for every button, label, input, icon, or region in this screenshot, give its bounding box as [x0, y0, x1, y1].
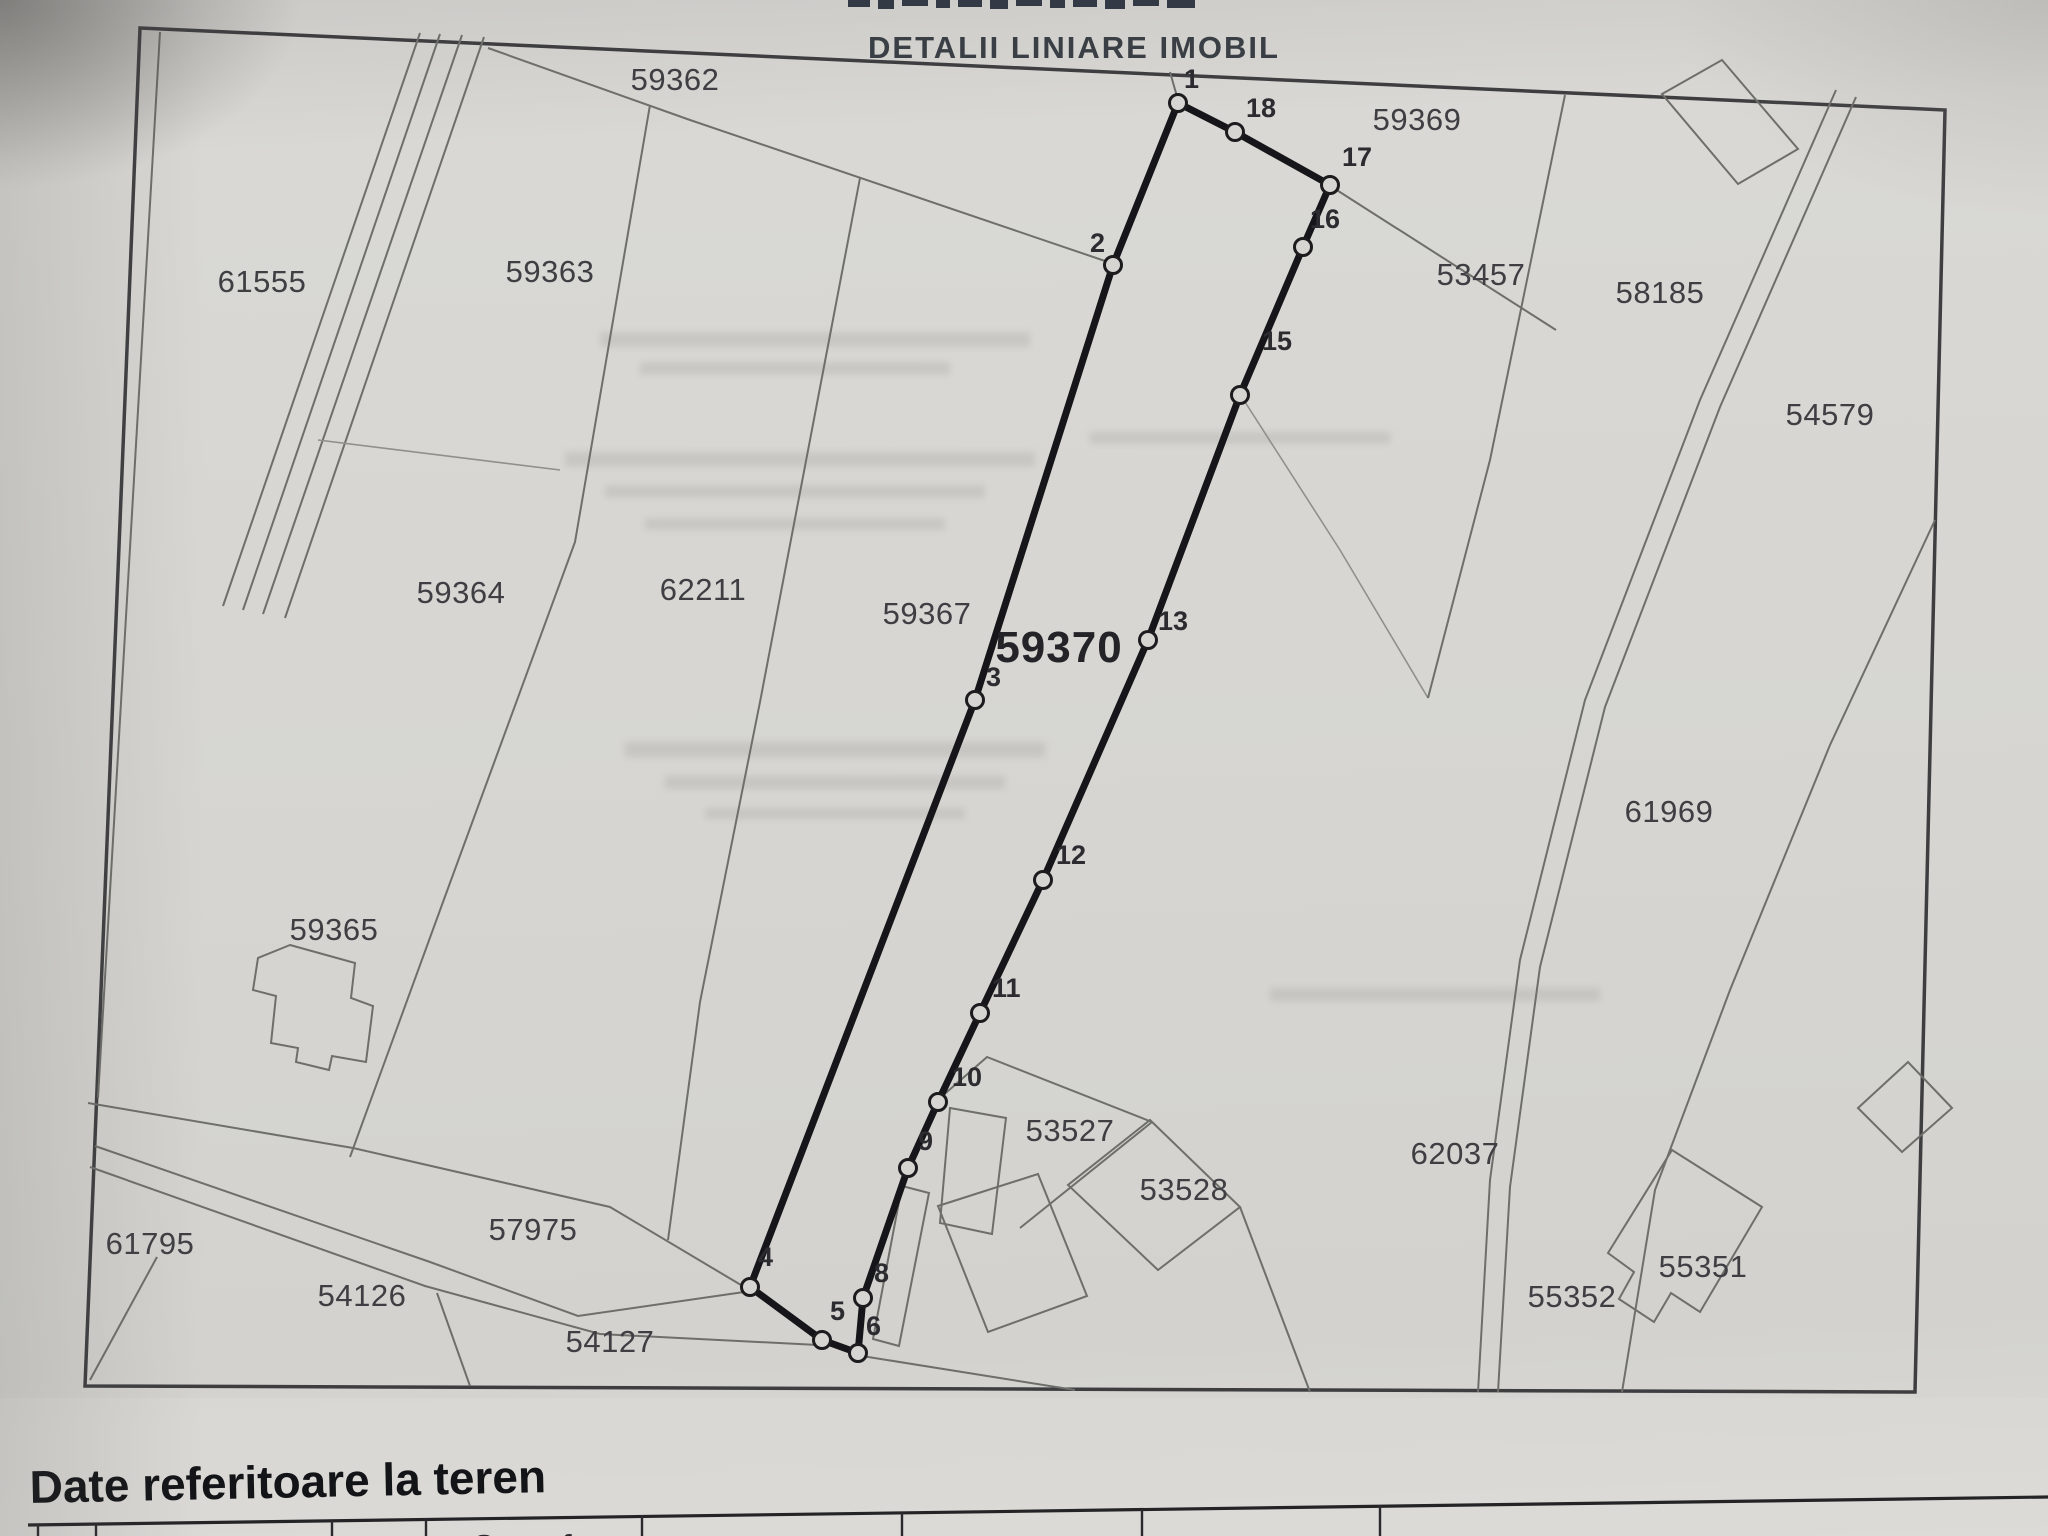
photo-page: DETALII LINIARE IMOBIL [0, 0, 2048, 1536]
vertex-label-12: 12 [1056, 840, 1086, 870]
vertex-node-2 [1105, 257, 1122, 274]
building-topright [1662, 60, 1798, 184]
vertex-node-8 [855, 1290, 872, 1307]
vertex-label-13: 13 [1158, 606, 1188, 636]
parcel-label-61969: 61969 [1625, 794, 1714, 829]
parcel-label-55352: 55352 [1528, 1279, 1617, 1314]
vertex-node-4 [742, 1279, 759, 1296]
parcel-label-59364: 59364 [417, 575, 506, 610]
vertex-label-4: 4 [758, 1242, 773, 1272]
parcel-label-59362: 59362 [631, 62, 720, 97]
vertex-node-10 [930, 1094, 947, 1111]
vertex-node-5 [814, 1332, 831, 1349]
parcel-label-53527: 53527 [1026, 1113, 1115, 1148]
building-55351 [1608, 1150, 1762, 1322]
parcel-label-57975: 57975 [489, 1212, 578, 1247]
parcel-label-55351: 55351 [1659, 1249, 1748, 1284]
bold-parcel-outline [750, 103, 1330, 1353]
cadastral-map-svg: DETALII LINIARE IMOBIL [0, 0, 2048, 1536]
parcel-label-59367: 59367 [883, 596, 972, 631]
vertex-label-18: 18 [1246, 93, 1276, 123]
vertex-label-2: 2 [1090, 228, 1105, 258]
vertex-label-17: 17 [1342, 142, 1372, 172]
parcel-label-62211: 62211 [660, 572, 746, 607]
vertex-node-15 [1232, 387, 1249, 404]
parcel-label-61795: 61795 [106, 1226, 195, 1261]
vertex-node-16 [1295, 239, 1312, 256]
parcel-label-59363: 59363 [506, 254, 595, 289]
vertex-node-13 [1140, 632, 1157, 649]
parcel-label-54126: 54126 [318, 1278, 407, 1313]
vertex-label-11: 11 [992, 973, 1021, 1003]
road-lower-line [90, 1167, 818, 1345]
building-59365 [253, 945, 373, 1070]
parcel-label-layer: 5936259363615555936462211593675936559369… [106, 62, 1875, 1359]
vertex-label-8: 8 [874, 1258, 889, 1288]
building-53527-c [938, 1174, 1087, 1332]
parcel-label-54579: 54579 [1786, 397, 1875, 432]
building-bottomright [1858, 1062, 1952, 1152]
parcel-label-62037: 62037 [1411, 1136, 1500, 1171]
vertex-label-5: 5 [830, 1296, 845, 1326]
vertex-label-9: 9 [918, 1126, 933, 1156]
inner-left-line [98, 32, 160, 1098]
parcel-label-59365: 59365 [290, 912, 379, 947]
map-title: DETALII LINIARE IMOBIL [868, 30, 1280, 65]
parcel-label-61555: 61555 [218, 264, 307, 299]
vertex-node-1 [1170, 95, 1187, 112]
vertex-node-11 [972, 1005, 989, 1022]
building-53527-a [940, 1108, 1006, 1234]
table-header-suprafata: Suprafata [474, 1528, 618, 1536]
parcel-label-53528: 53528 [1140, 1172, 1229, 1207]
vertex-label-10: 10 [952, 1062, 982, 1092]
vertex-label-6: 6 [866, 1311, 881, 1341]
vertex-label-1: 1 [1184, 64, 1199, 94]
vertex-label-15: 15 [1262, 326, 1292, 356]
vertex-node-17 [1322, 177, 1339, 194]
vertex-node-6 [850, 1345, 867, 1362]
vertex-node-3 [967, 692, 984, 709]
vertex-node-12 [1035, 872, 1052, 889]
parcel-label-58185: 58185 [1616, 275, 1705, 310]
section-heading: Date referitoare la teren [29, 1450, 546, 1513]
parcel-label-59369: 59369 [1373, 102, 1462, 137]
vertex-label-16: 16 [1310, 204, 1340, 234]
vertex-node-9 [900, 1160, 917, 1177]
parcel-boundaries [88, 33, 1935, 1392]
parcel-label-59370: 59370 [995, 623, 1122, 672]
parcel-label-54127: 54127 [566, 1324, 655, 1359]
map-frame [85, 28, 1945, 1392]
cropped-topline-text [848, 0, 1195, 9]
vertex-node-18 [1227, 124, 1244, 141]
parcel-label-53457: 53457 [1437, 257, 1526, 292]
vertex-layer: 123456891011121315161718 [742, 64, 1373, 1362]
